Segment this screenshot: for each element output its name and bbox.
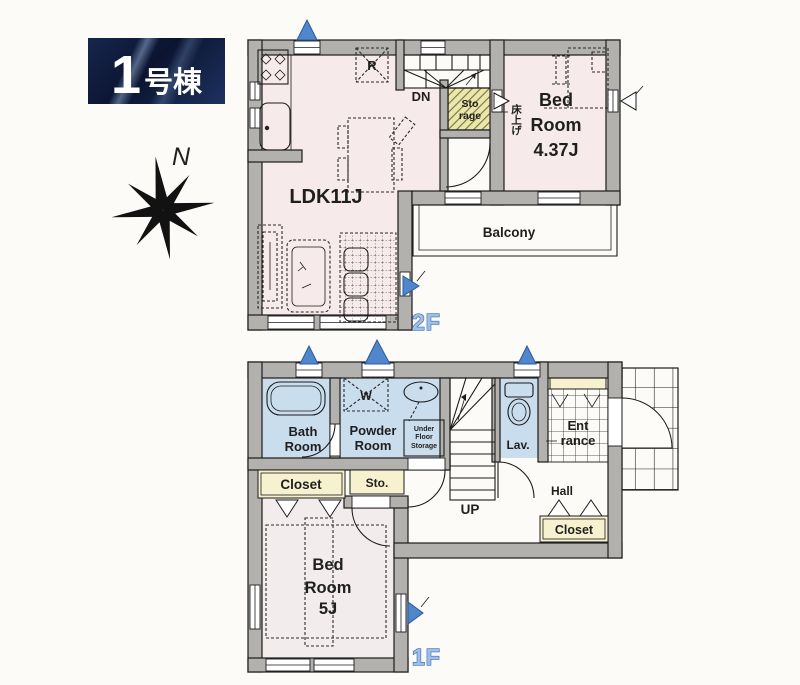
label-ldk: LDK11J [289,186,362,208]
label-ufs-line3: Storage [411,443,437,450]
label-bedroom-1f-line1: Bed [312,556,343,574]
vent-marker-right-2f [621,92,636,110]
label-storage-line2: rage [459,110,481,122]
label-sto: Sto. [366,476,389,490]
floor-plan-drawing: N [0,0,800,685]
vent-marker-top-1f [300,346,318,364]
label-entrance-line2: rance [561,433,596,448]
label-refrigerator: R [367,58,377,73]
vent-marker-right-1f [408,602,423,624]
closet-door-marker [548,500,570,516]
compass-star-icon [104,149,221,266]
vent-marker-top-1f [365,340,390,364]
label-lav: Lav. [506,438,529,452]
storage-sto: Sto. [350,470,404,494]
label-storage-line1: Sto [462,98,479,110]
balcony: Balcony [413,205,617,256]
label-ufs-line1: Under [414,426,435,433]
floor-2f-plan: Balcony DN [248,20,643,335]
label-bedroom-1f-line2: Room [305,579,352,597]
label-raised-floor: 床上げ [510,103,522,136]
label-bath-line1: Bath [289,424,318,439]
label-closet-hall: Closet [555,523,594,537]
closet-left: Closet [258,470,345,498]
closet-door-marker [580,500,602,516]
label-washer: W [360,389,372,403]
room-bedroom-1f [262,498,394,658]
floor-1f-plan: Closet Sto. Closet [248,340,678,672]
vent-marker-top-2f [297,20,317,40]
label-hall: Hall [551,484,573,498]
label-stairs-down: DN [412,89,431,104]
floor-label-1f: 1F [412,644,441,670]
label-bedroom-2f-line3: 4.37J [533,140,578,160]
label-balcony: Balcony [483,225,536,240]
label-powder-line1: Powder [350,423,397,438]
label-bath-line2: Room [285,439,322,454]
compass-rose: N [104,143,221,267]
label-stairs-up: UP [461,502,480,517]
floor-plan-page: 1 号棟 [0,0,800,685]
sofa-icon [340,233,396,322]
label-closet-left: Closet [280,477,322,492]
door-arc-hall-2f [446,143,490,187]
compass-north-label: N [172,143,191,171]
door-arc-lav [498,462,534,498]
label-bedroom-2f-line2: Room [531,115,582,135]
label-bedroom-2f-line1: Bed [539,90,573,110]
vent-marker-top-1f [518,346,536,364]
label-entrance-line1: Ent [568,418,590,433]
closet-hall: Closet [540,516,608,542]
stairs-1f [450,378,495,500]
label-ufs-line2: Floor [415,434,433,441]
label-powder-line2: Room [355,438,392,453]
label-bedroom-1f-line3: 5J [319,600,337,618]
door-arc-washroom [408,470,445,507]
floor-label-2f: 2F [412,309,441,335]
